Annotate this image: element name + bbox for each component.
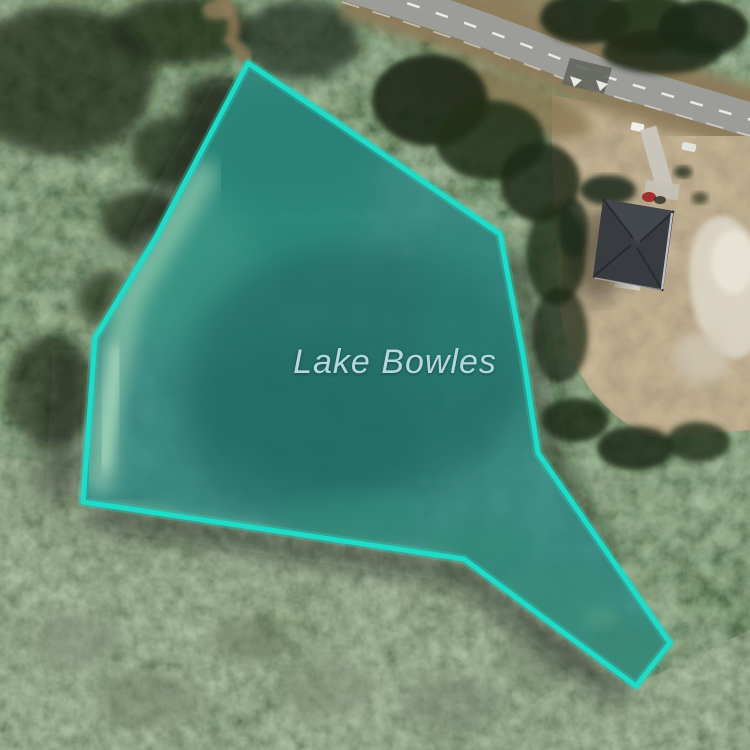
porch-shadow <box>654 196 666 204</box>
yard-shrub <box>674 166 692 178</box>
satellite-imagery <box>0 0 750 750</box>
map-canvas[interactable]: Lake Bowles <box>0 0 750 750</box>
red-vehicle <box>642 192 656 202</box>
yard-shrub <box>692 192 708 204</box>
yard-tree <box>558 198 588 258</box>
